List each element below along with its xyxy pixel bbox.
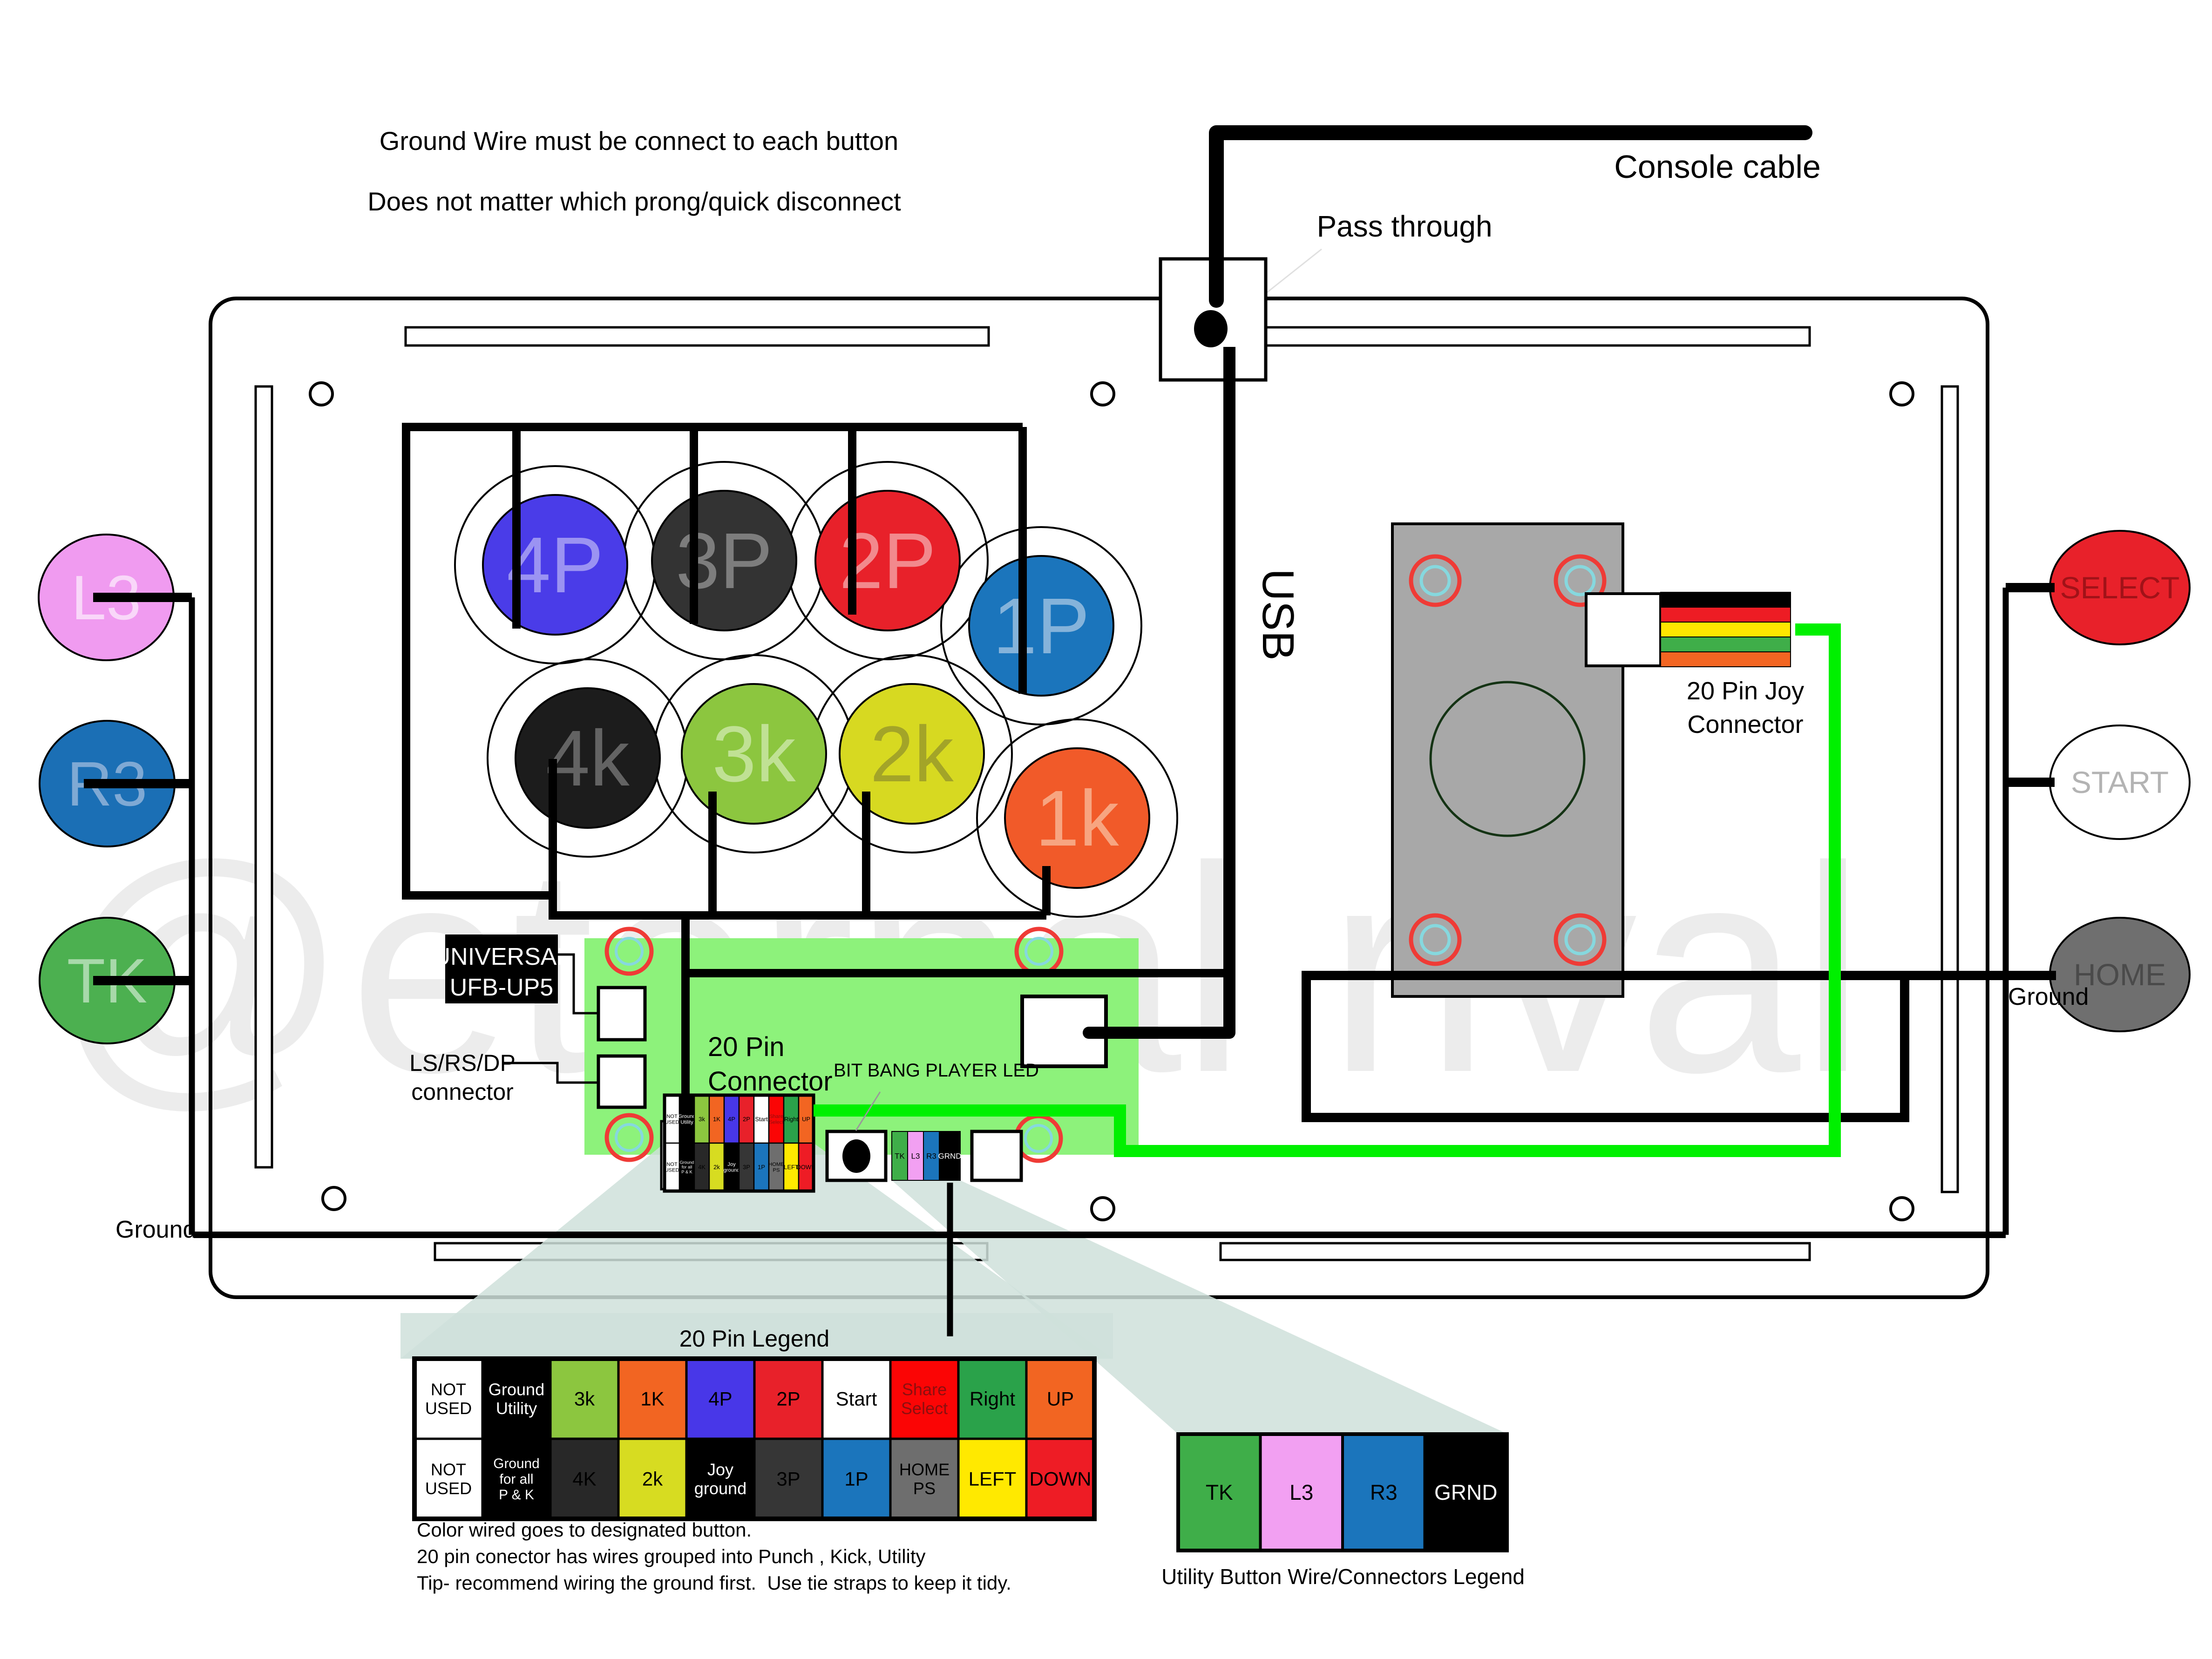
pin-cell-label: 1P bbox=[758, 1164, 765, 1171]
pin-cell-label: PS bbox=[773, 1168, 780, 1173]
button-3k-label: 3k bbox=[712, 710, 796, 799]
usb-up5-connector-1 bbox=[598, 988, 645, 1040]
pin20-label-line2: Connector bbox=[708, 1066, 833, 1097]
pin-cell-label: 3k bbox=[699, 1116, 705, 1123]
case-top-slot-left bbox=[406, 327, 989, 345]
legend-utility-title: Utility Button Wire/Connectors Legend bbox=[1161, 1564, 1525, 1589]
pin-cell-label: TK bbox=[895, 1151, 905, 1160]
pin-cell-label: Share bbox=[769, 1114, 783, 1119]
pin-cell-label: PS bbox=[913, 1479, 936, 1498]
pin-cell-label: Ground bbox=[489, 1380, 544, 1399]
screw-hole bbox=[1092, 383, 1114, 405]
pin-cell-label: USED bbox=[425, 1479, 472, 1498]
pin-cell-label: Ground bbox=[680, 1160, 694, 1165]
pin-cell-label: L3 bbox=[1289, 1480, 1313, 1504]
pin-cell-label: GRND bbox=[938, 1151, 961, 1160]
ribbon-wire-4 bbox=[1661, 652, 1791, 667]
pin-cell-label: P & K bbox=[499, 1487, 534, 1503]
universal-label-line1: UNIVERSAL bbox=[433, 943, 570, 970]
pin-cell-label: for all bbox=[500, 1471, 534, 1487]
pin-cell-label: P & K bbox=[681, 1170, 692, 1174]
joy-ribbon-wires bbox=[1661, 592, 1791, 667]
pin20-connector-row1: NOTUSEDGroundUtility3k1K4P2PStartShareSe… bbox=[665, 1095, 814, 1143]
pin-cell-label: Start bbox=[836, 1388, 877, 1410]
ribbon-wire-3 bbox=[1661, 637, 1791, 652]
pin-cell-label: 3P bbox=[776, 1468, 800, 1490]
aux-connector-box bbox=[972, 1131, 1021, 1180]
joy-connector-housing bbox=[1586, 594, 1661, 666]
pin-cell-label: Share bbox=[902, 1380, 947, 1399]
bottom-note-2: 20 pin conector has wires grouped into P… bbox=[417, 1545, 926, 1567]
button-1p-label: 1P bbox=[993, 582, 1090, 670]
ribbon-wire-0 bbox=[1661, 592, 1791, 607]
button-select-label: SELECT bbox=[2060, 570, 2180, 605]
pin-cell-label: LEFT bbox=[969, 1468, 1017, 1490]
pin-cell-label: 4K bbox=[698, 1164, 706, 1171]
pin-cell-label: Joy bbox=[707, 1460, 733, 1479]
pin-cell-label: Select bbox=[769, 1120, 784, 1125]
screw-hole bbox=[1891, 383, 1913, 405]
pin-cell-label: Ground bbox=[678, 1114, 695, 1119]
pin-cell-label: Ground bbox=[493, 1456, 539, 1471]
pin-cell-label: 4P bbox=[728, 1116, 735, 1123]
pin-cell-label: 3P bbox=[743, 1164, 750, 1171]
bottom-note-3: Tip- recommend wiring the ground first. … bbox=[417, 1572, 1011, 1594]
screw-hole bbox=[1891, 1198, 1913, 1220]
button-start-label: START bbox=[2071, 765, 2169, 799]
pin-cell-label: L3 bbox=[911, 1151, 920, 1160]
pin20-connector-row2: NOTUSEDGroundfor allP & K4K2kJoyground3P… bbox=[665, 1143, 816, 1191]
legend-20pin-row1: NOTUSEDGroundUtility3k1K4P2PStartShareSe… bbox=[414, 1359, 1094, 1439]
pin-cell-label: UP bbox=[1047, 1388, 1074, 1410]
joy-connector-label-line2: Connector bbox=[1687, 711, 1803, 738]
pin-cell-label: for all bbox=[682, 1165, 692, 1170]
pin-cell-label: R3 bbox=[1370, 1480, 1398, 1504]
universal-label-line2: UFB-UP5 bbox=[450, 974, 553, 1001]
pin-cell-label: USED bbox=[665, 1120, 679, 1125]
pin-cell-label: UP bbox=[802, 1116, 810, 1123]
pin-cell-label: Utility bbox=[680, 1120, 693, 1125]
legend-20pin-row2: NOTUSEDGroundfor allP & K4K2kJoyground3P… bbox=[414, 1439, 1094, 1519]
pin-cell-label: ground bbox=[724, 1168, 740, 1173]
legend-20pin-title: 20 Pin Legend bbox=[679, 1326, 830, 1352]
pin-cell-label: 1K bbox=[713, 1116, 720, 1123]
pin-cell-label: 1K bbox=[640, 1388, 664, 1410]
ground-label-left: Ground bbox=[115, 1216, 196, 1243]
pin-cell-label: 3k bbox=[574, 1388, 595, 1410]
pin-cell-label: Start bbox=[755, 1116, 768, 1123]
utility-connector-mini: TKL3R3GRND bbox=[892, 1131, 962, 1180]
pin-cell-label: 2k bbox=[642, 1468, 663, 1490]
bottom-note-1: Color wired goes to designated button. bbox=[417, 1519, 752, 1541]
pin-cell-label: NOT bbox=[431, 1460, 466, 1479]
pin-cell-label: Select bbox=[901, 1399, 948, 1418]
pin-cell-label: 2k bbox=[713, 1164, 720, 1171]
lsrsdp-label-line2: connector bbox=[411, 1079, 514, 1105]
legend-utility: TKL3R3GRND bbox=[1178, 1434, 1507, 1551]
pin-cell-label: HOME bbox=[899, 1460, 950, 1479]
screw-hole bbox=[323, 1187, 345, 1210]
pin-cell-label: R3 bbox=[926, 1151, 936, 1160]
pin-cell-label: TK bbox=[1206, 1480, 1233, 1504]
pin-cell-label: NOT bbox=[666, 1162, 678, 1167]
screw-hole bbox=[310, 383, 332, 405]
pin-cell-label: Right bbox=[970, 1388, 1015, 1410]
pin-cell-label: DOWN bbox=[1030, 1468, 1092, 1490]
top-note-line2: Does not matter which prong/quick discon… bbox=[367, 187, 901, 216]
case-side-slot-right bbox=[1942, 386, 1958, 1192]
pin-cell-label: USED bbox=[665, 1168, 679, 1173]
button-2k-label: 2k bbox=[870, 710, 954, 799]
case-top-slot-right bbox=[1221, 327, 1810, 345]
case-side-slot-left bbox=[256, 386, 272, 1167]
pass-through-dot bbox=[1194, 310, 1228, 347]
pin20-label-line1: 20 Pin bbox=[708, 1032, 784, 1062]
lsrsdp-label-line1: LS/RS/DP bbox=[409, 1050, 516, 1076]
usb-label: USB bbox=[1253, 569, 1303, 660]
pin-cell-label: 2P bbox=[743, 1116, 750, 1123]
pin-cell-label: Utility bbox=[496, 1399, 537, 1418]
button-1k-label: 1k bbox=[1035, 774, 1120, 863]
ribbon-wire-1 bbox=[1661, 607, 1791, 622]
bitbang-label: BIT BANG PLAYER LED bbox=[834, 1060, 1039, 1081]
pin-cell-label: Joy bbox=[727, 1162, 736, 1167]
pin-cell-label: Right bbox=[784, 1116, 799, 1123]
top-note-line1: Ground Wire must be connect to each butt… bbox=[380, 126, 898, 156]
pass-through-label: Pass through bbox=[1316, 210, 1492, 243]
pin-cell-label: 1P bbox=[844, 1468, 868, 1490]
screw-hole bbox=[1092, 1198, 1114, 1220]
lsrsdp-connector bbox=[598, 1056, 645, 1107]
bitbang-led-dot bbox=[842, 1139, 870, 1173]
pin-cell-label: 4P bbox=[708, 1388, 732, 1410]
pin-cell-label: 2P bbox=[776, 1388, 800, 1410]
button-4k-label: 4k bbox=[546, 714, 630, 803]
case-bottom-slot-right bbox=[1221, 1243, 1810, 1260]
pin-cell-label: NOT bbox=[666, 1114, 678, 1119]
console-cable-label: Console cable bbox=[1614, 149, 1821, 185]
pin-cell-label: GRND bbox=[1434, 1480, 1497, 1504]
ribbon-wire-2 bbox=[1661, 622, 1791, 637]
pin-cell-label: HOME bbox=[768, 1162, 784, 1167]
button-4p-label: 4P bbox=[507, 521, 604, 609]
pin-cell-label: USED bbox=[425, 1399, 472, 1418]
pin-cell-label: ground bbox=[694, 1479, 746, 1498]
pin-cell-label: NOT bbox=[431, 1380, 466, 1399]
joy-connector-label-line1: 20 Pin Joy bbox=[1687, 677, 1804, 705]
ground-label-right: Ground bbox=[2008, 983, 2089, 1010]
pin-cell-label: 4K bbox=[572, 1468, 596, 1490]
